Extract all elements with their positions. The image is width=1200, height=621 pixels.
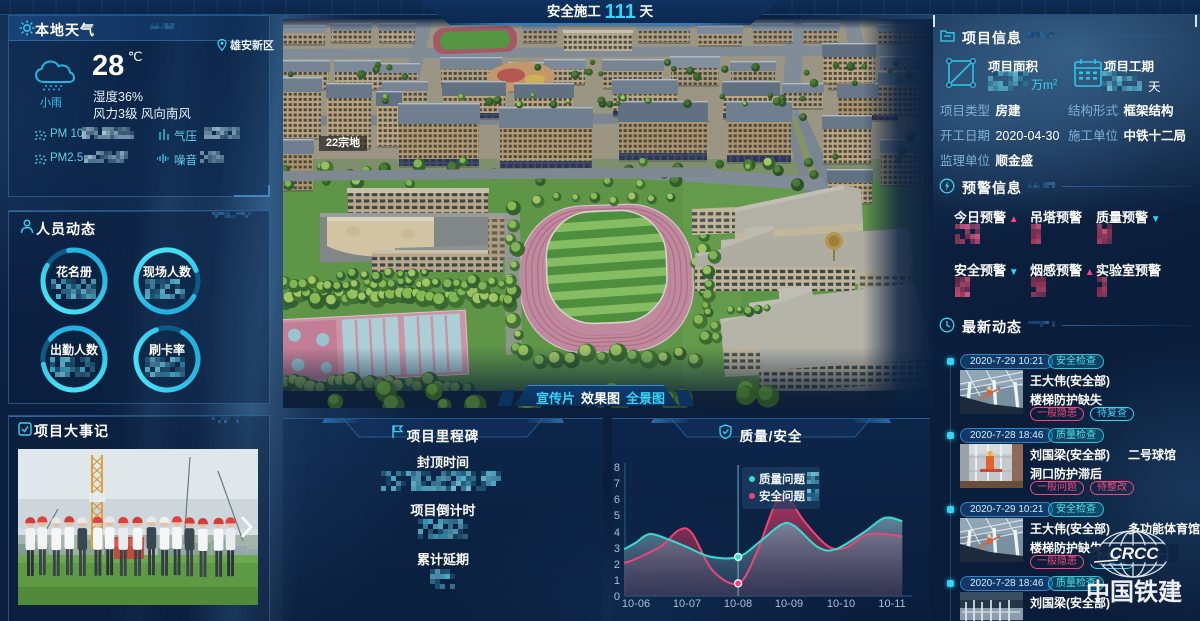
- svg-text:安全问题: 安全问题: [759, 489, 805, 503]
- svg-text:中国铁建: 中国铁建: [1086, 579, 1182, 606]
- svg-text:10-11: 10-11: [878, 598, 905, 610]
- svg-text:6: 6: [614, 494, 620, 506]
- svg-text:10-10: 10-10: [827, 598, 855, 610]
- svg-text:0: 0: [614, 591, 620, 603]
- svg-text:10-09: 10-09: [775, 598, 803, 610]
- svg-text:8: 8: [614, 462, 620, 474]
- svg-text:1: 1: [614, 575, 620, 587]
- svg-text:质量问题: 质量问题: [759, 472, 805, 486]
- svg-text:5: 5: [614, 510, 620, 522]
- svg-text:10-07: 10-07: [673, 598, 701, 610]
- svg-text:7: 7: [614, 478, 620, 490]
- svg-text:2: 2: [614, 559, 620, 571]
- svg-text:4: 4: [614, 527, 620, 539]
- svg-text:3: 3: [614, 543, 620, 555]
- svg-text:10-08: 10-08: [724, 598, 752, 610]
- svg-text:10-06: 10-06: [622, 598, 650, 610]
